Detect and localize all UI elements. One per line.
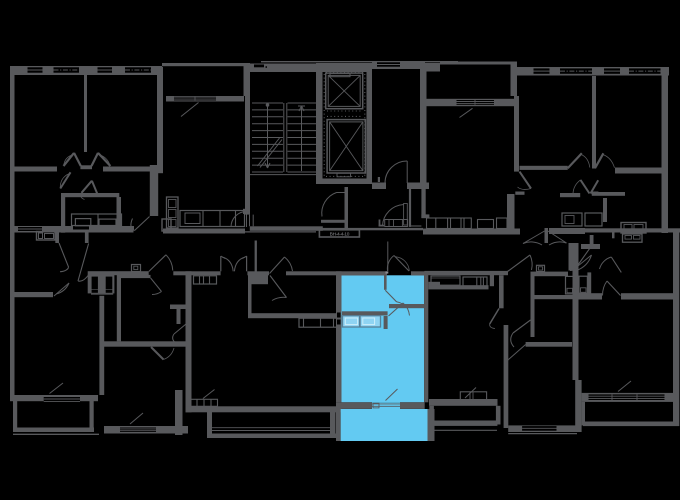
svg-text:BH-4-4-10: BH-4-4-10 [330,232,350,238]
